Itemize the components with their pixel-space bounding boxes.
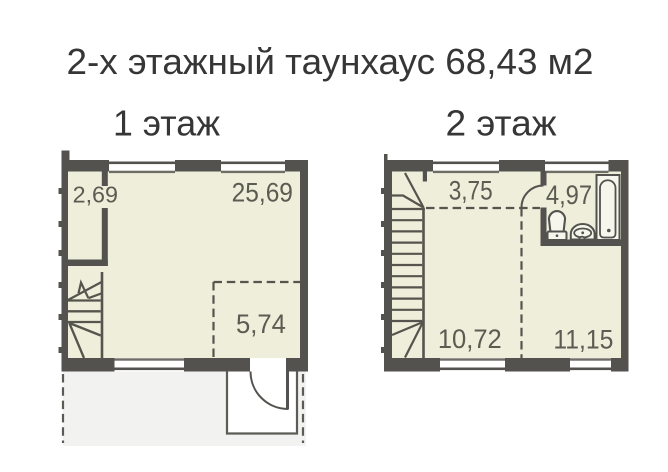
svg-text:1 этаж: 1 этаж: [113, 103, 220, 144]
svg-text:3,75: 3,75: [449, 176, 493, 206]
svg-text:2,69: 2,69: [73, 182, 118, 208]
svg-text:11,15: 11,15: [553, 325, 613, 355]
svg-text:2 этаж: 2 этаж: [446, 103, 557, 144]
svg-text:10,72: 10,72: [438, 324, 502, 354]
svg-text:25,69: 25,69: [232, 178, 293, 208]
svg-text:4,97: 4,97: [546, 180, 592, 210]
svg-text:5,74: 5,74: [236, 309, 286, 339]
svg-text:2-х этажный таунхаус 68,43 м2: 2-х этажный таунхаус 68,43 м2: [67, 41, 594, 82]
